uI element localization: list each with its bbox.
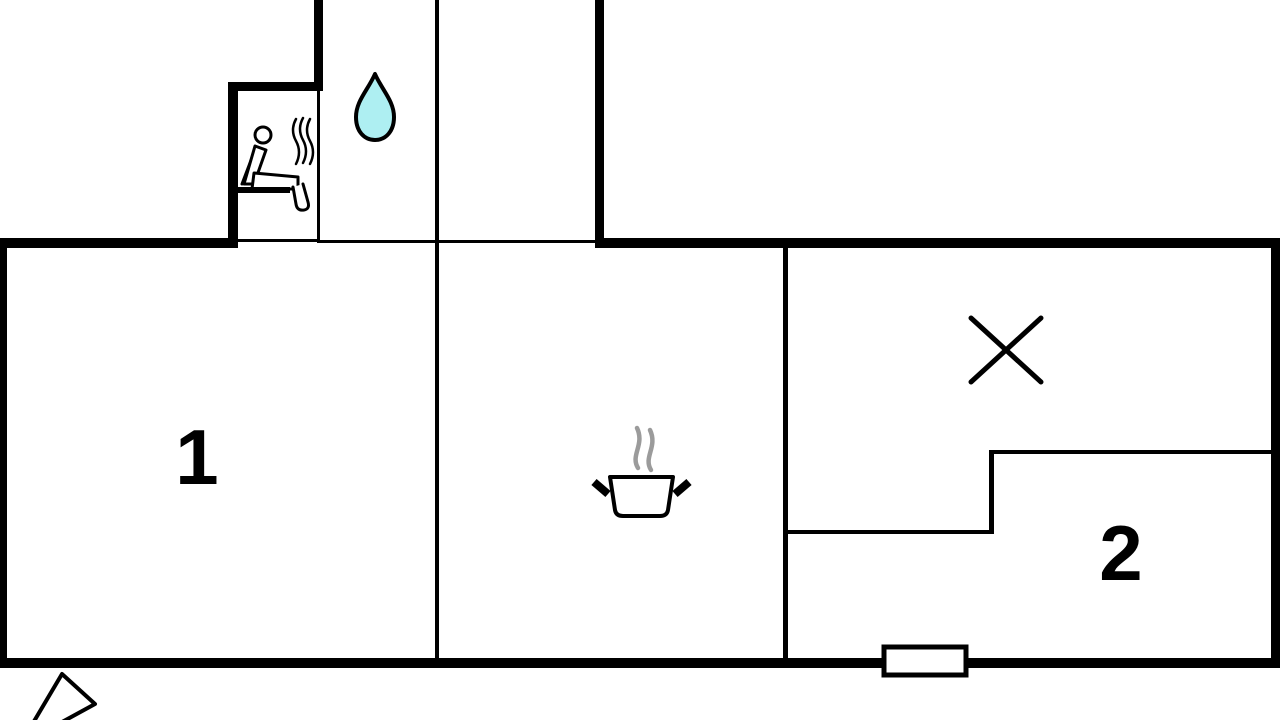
sauna-edge-right xyxy=(317,88,320,243)
sauna-steam-icon xyxy=(293,118,313,164)
wall-top-left xyxy=(0,238,238,248)
walls xyxy=(0,0,1280,668)
step-wall-vertical xyxy=(989,450,994,534)
steam-wave xyxy=(300,118,306,163)
window-marker xyxy=(884,647,966,675)
sauna-edge-bottom xyxy=(238,239,320,242)
pot-steam xyxy=(636,428,653,470)
divider-room1-kitchen xyxy=(435,240,439,660)
step-wall-lower xyxy=(785,530,993,534)
x-mark-icon xyxy=(971,318,1041,382)
pot-handle-left xyxy=(594,482,608,494)
bath-wall-right xyxy=(595,0,604,248)
room-1-label: 1 xyxy=(175,413,218,501)
sauna-person-thigh xyxy=(252,173,298,189)
wall-top-right xyxy=(595,238,1280,248)
view-direction-cone xyxy=(20,674,95,720)
sauna-wall-left xyxy=(228,82,238,248)
water-drop-icon xyxy=(356,74,394,140)
pot-handle-right xyxy=(675,482,689,494)
steam-wave xyxy=(307,119,313,164)
sauna-person-head xyxy=(255,127,271,143)
wall-mid-thin xyxy=(320,240,595,243)
wall-left xyxy=(0,238,7,668)
steam-wave xyxy=(293,119,299,164)
pot-body xyxy=(610,477,673,516)
pot-steam-wave xyxy=(649,430,653,470)
wall-bottom xyxy=(0,658,1280,668)
floor-plan-svg: 1 2 xyxy=(0,0,1280,720)
divider-kitchen-room2 xyxy=(783,243,788,661)
step-wall-upper xyxy=(993,450,1271,454)
water-drop-shape xyxy=(356,74,394,140)
cooking-pot-icon xyxy=(594,428,689,516)
wall-stub-top xyxy=(314,0,323,91)
bath-divider xyxy=(435,0,439,240)
sauna-wall-top xyxy=(228,82,323,91)
sauna-person-calf xyxy=(293,184,309,210)
sauna-person-icon xyxy=(237,118,313,210)
floor-plan: 1 2 xyxy=(0,0,1280,720)
wall-right xyxy=(1271,238,1280,668)
pot-steam-wave xyxy=(636,428,640,468)
room-2-label: 2 xyxy=(1099,509,1142,597)
